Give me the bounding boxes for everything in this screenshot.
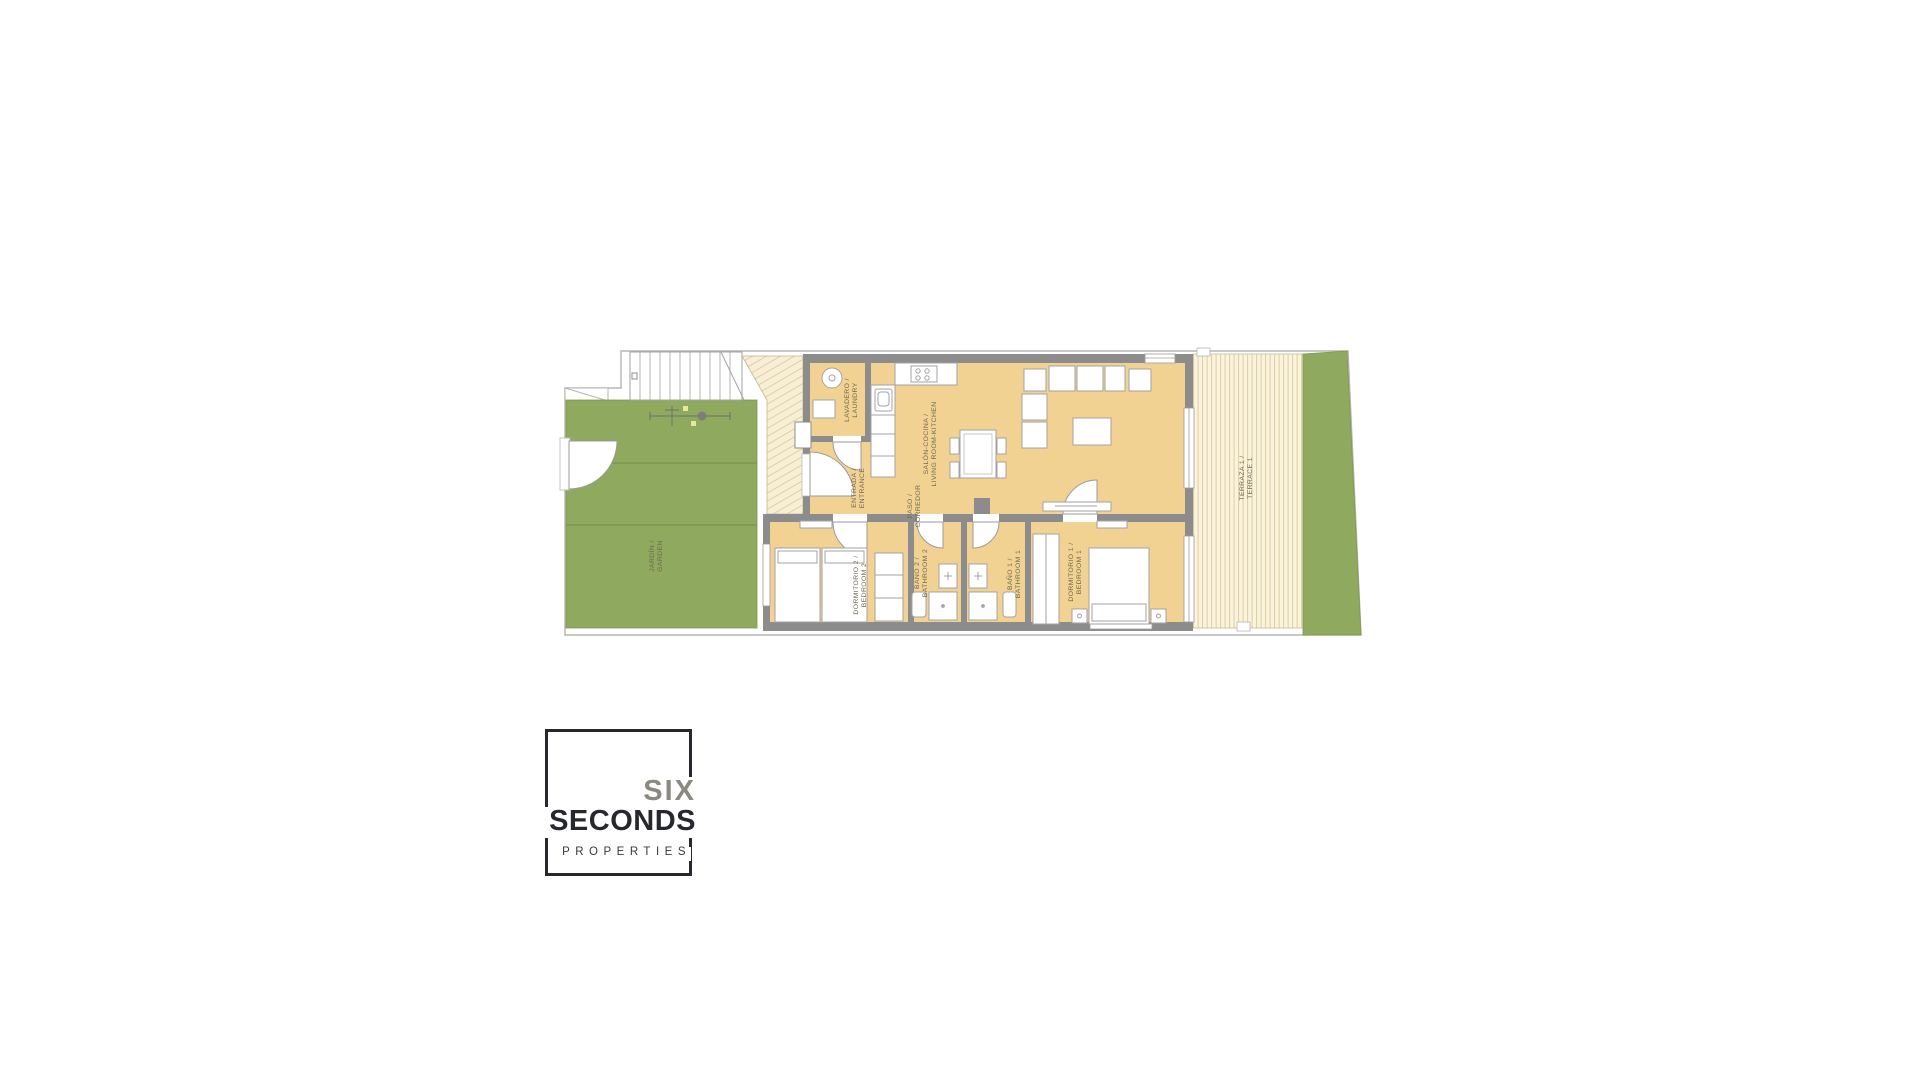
- svg-text:BATHROOM 1: BATHROOM 1: [1015, 550, 1022, 598]
- svg-text:TERRAZA 1 /: TERRAZA 1 /: [1239, 455, 1246, 500]
- label-bedroom1: DORMITORIO 1 / BEDROOM 1: [1068, 542, 1083, 601]
- logo-word-seconds: SECONDS: [543, 807, 696, 838]
- six-seconds-logo: SIX SECONDS PROPERTIES: [545, 729, 692, 876]
- svg-text:CORREDOR: CORREDOR: [915, 485, 922, 528]
- svg-text:ENTRADA /: ENTRADA /: [851, 468, 858, 507]
- green-strip: [1303, 351, 1361, 635]
- svg-text:DORMITORIO 2 /: DORMITORIO 2 /: [853, 555, 860, 614]
- label-entrance: ENTRADA / ENTRANCE: [851, 468, 866, 509]
- svg-text:LAVADERO /: LAVADERO /: [844, 378, 851, 422]
- label-garden: JARDÍN / GARDEN: [647, 540, 664, 572]
- label-bedroom2: DORMITORIO 2 / BEDROOM 2: [853, 555, 868, 614]
- label-laundry: LAVADERO / LAUNDRY: [844, 378, 859, 422]
- svg-text:GARDEN: GARDEN: [657, 540, 664, 571]
- boundary-tick-top: [1197, 348, 1210, 356]
- label-living-room-kitchen: SALÓN-COCINA / LIVING ROOM-KITCHEN: [921, 401, 938, 486]
- svg-text:BEDROOM 2: BEDROOM 2: [861, 563, 868, 607]
- logo-word-six: SIX: [633, 777, 696, 808]
- svg-text:DORMITORIO 1 /: DORMITORIO 1 /: [1068, 542, 1075, 601]
- svg-text:SALÓN-COCINA /: SALÓN-COCINA /: [921, 414, 930, 475]
- svg-text:BEDROOM 1: BEDROOM 1: [1076, 550, 1083, 594]
- svg-text:JARDÍN /: JARDÍN /: [647, 540, 656, 572]
- svg-text:ENTRANCE: ENTRANCE: [859, 468, 866, 509]
- svg-text:LIVING ROOM-KITCHEN: LIVING ROOM-KITCHEN: [931, 401, 938, 486]
- floor-plan-container: LAVADERO / LAUNDRY ENTRADA / ENTRANCE SA…: [545, 338, 1365, 648]
- garden-area: [560, 400, 757, 628]
- label-terrace: TERRAZA 1 / TERRACE 1: [1239, 455, 1254, 500]
- logo-word-properties: PROPERTIES: [556, 847, 691, 861]
- stairs: [630, 352, 744, 400]
- floor-plan: LAVADERO / LAUNDRY ENTRADA / ENTRANCE SA…: [545, 338, 1365, 648]
- boundary-tick-bottom: [1237, 622, 1250, 631]
- svg-text:BAÑO 1 /: BAÑO 1 /: [1005, 558, 1014, 590]
- svg-text:LAUNDRY: LAUNDRY: [852, 382, 859, 417]
- floorplan-page: LAVADERO / LAUNDRY ENTRADA / ENTRANCE SA…: [0, 0, 1920, 1080]
- svg-text:BATHROOM 2: BATHROOM 2: [922, 549, 929, 597]
- svg-text:TERRACE 1: TERRACE 1: [1247, 457, 1254, 499]
- svg-text:PASO /: PASO /: [907, 494, 914, 519]
- svg-text:BAÑO 2 /: BAÑO 2 /: [912, 557, 921, 589]
